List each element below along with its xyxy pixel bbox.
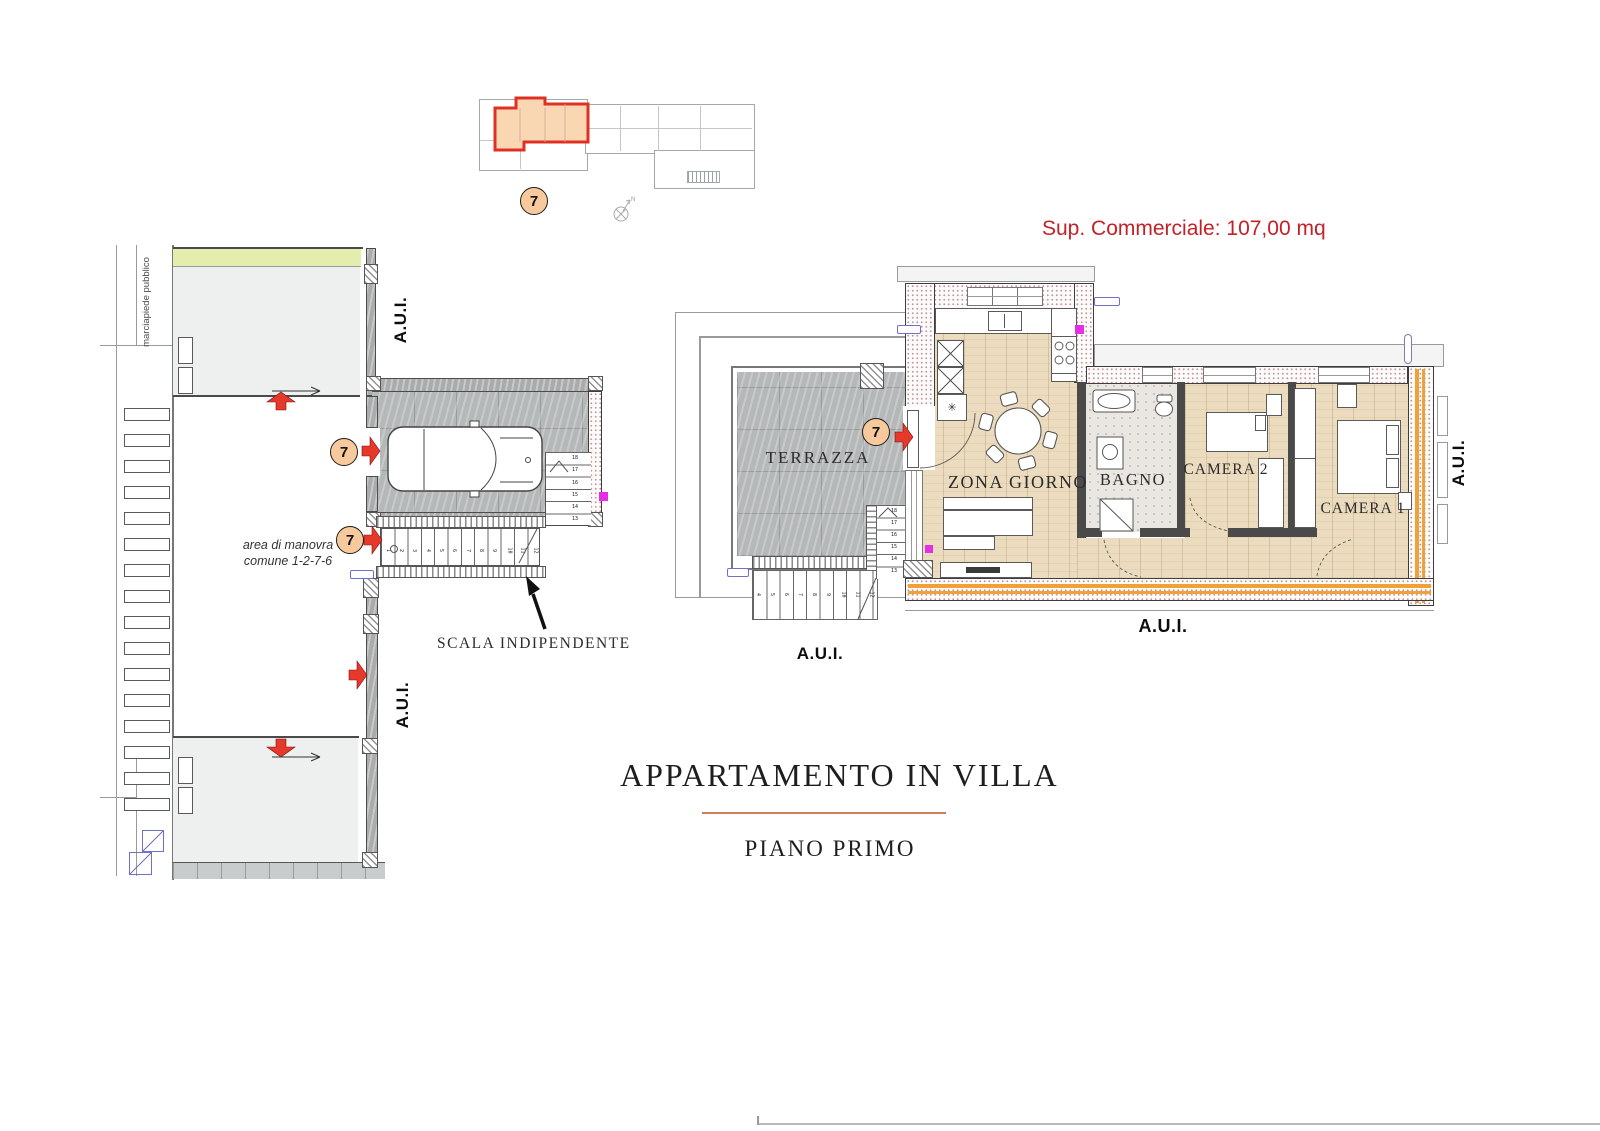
overview-main-block [585, 104, 755, 154]
page-title: APPARTAMENTO IN VILLA [620, 757, 1040, 794]
nightstand [1337, 384, 1357, 408]
pillow [1255, 415, 1266, 431]
compass-north-letter: N [631, 197, 635, 203]
plinth-line [905, 610, 1434, 611]
driveway-gate-line [173, 395, 360, 397]
lower-driveway [173, 738, 358, 862]
measure-mark [1094, 297, 1120, 306]
gate-post [178, 787, 193, 814]
sidewalk-paver [124, 694, 170, 707]
insulation-stripe [1415, 369, 1419, 603]
sidewalk-paver [124, 408, 170, 421]
bottom-wall [905, 578, 1434, 601]
garage-stair-landing [545, 452, 591, 525]
partition-wall [1177, 382, 1185, 530]
sidewalk-cross-line [100, 345, 172, 346]
survey-point [599, 492, 608, 501]
green-strip [173, 249, 361, 267]
window [1318, 367, 1370, 383]
insulation-stripe [1422, 369, 1426, 603]
sidewalk-paver [124, 434, 170, 447]
sidewalk-paver [124, 564, 170, 577]
stair-number: 4 [425, 549, 430, 552]
sidewalk-paver [124, 798, 170, 811]
stair-number: 14 [891, 557, 897, 562]
garage-left-wall [366, 396, 378, 428]
terrace-inner-line [699, 336, 701, 598]
pillow [1386, 425, 1399, 455]
stair-number: 6 [783, 593, 788, 596]
room-label-terrazza: TERRAZZA [752, 448, 884, 468]
stair-number: 5 [769, 593, 774, 596]
stair-parapet [376, 516, 546, 528]
wall-pier [364, 264, 378, 284]
kitchen-stove [1051, 336, 1077, 374]
arrow-gate [349, 661, 367, 689]
eaves-band [1094, 344, 1444, 367]
radiator [1437, 396, 1448, 436]
room-label-zona-giorno: ZONA GIORNO [948, 472, 1082, 493]
gate-post [178, 367, 193, 394]
corridor-floor [1077, 538, 1187, 578]
overview-inner-line [586, 128, 752, 129]
sidewalk-paver [124, 616, 170, 629]
sink-divider [1004, 314, 1005, 328]
stair-number: 13 [572, 517, 578, 522]
unit-marker-garage: 7 [330, 438, 358, 466]
kitchen-tall-unit [937, 340, 964, 367]
stair-number: 17 [572, 468, 578, 473]
sidewalk-edge-line [136, 245, 137, 346]
site-wall [366, 578, 378, 740]
window [1203, 367, 1256, 383]
floor-plan-page: Sup. Commerciale: 107,00 mq 7 marciapied… [0, 0, 1600, 1131]
garage-door-opening [364, 428, 380, 476]
wall-pier [362, 738, 378, 754]
drain-grate [129, 852, 152, 875]
sidewalk-paver [124, 720, 170, 733]
aui-label: A.U.I. [1132, 616, 1194, 634]
page-edge-line [757, 1123, 1600, 1125]
partition-wall [1228, 528, 1317, 537]
stair-number: 4 [755, 593, 760, 596]
commercial-area-label: Sup. Commerciale: 107,00 mq [1042, 217, 1372, 241]
stair-number: 5 [438, 549, 443, 552]
stair-number: 9 [491, 549, 496, 552]
fridge-symbol: ✳ [947, 401, 956, 414]
kitchen-tall-unit [937, 367, 964, 394]
pillow [1386, 458, 1399, 488]
stair-number: 15 [572, 493, 578, 498]
survey-point [925, 545, 933, 553]
downpipe [1404, 334, 1412, 364]
stair-number: 8 [478, 549, 483, 552]
wall-pier [363, 578, 379, 598]
partition-wall [1086, 528, 1102, 537]
fridge: ✳ [937, 394, 967, 421]
stair-number: 17 [891, 521, 897, 526]
kitchen-sink [988, 311, 1022, 331]
sidewalk-paver [124, 746, 170, 759]
survey-point [1075, 325, 1084, 334]
gate-post [178, 337, 193, 364]
page-subtitle: PIANO PRIMO [620, 836, 1040, 862]
stair-number: 10 [507, 547, 512, 553]
stair-parapet [376, 566, 546, 578]
stair-number: 11 [855, 591, 860, 597]
stair-number: 13 [891, 569, 897, 574]
drain-grate [142, 830, 164, 852]
stair-number: 3 [411, 549, 416, 552]
title-underline [702, 812, 946, 814]
window-glass-line [1143, 375, 1172, 376]
window [1142, 367, 1173, 383]
bathroom-floor [1086, 382, 1178, 532]
tv-screen [966, 567, 1000, 573]
compass-icon: N [614, 197, 635, 221]
partition-wall [1077, 382, 1086, 538]
sidewalk-paver [124, 460, 170, 473]
sofa-back [943, 497, 1033, 510]
wall-pier [366, 376, 381, 391]
partition-wall [1140, 528, 1190, 537]
stair-number: 9 [825, 593, 830, 596]
stair-number: 15 [891, 545, 897, 550]
unit-marker-entrance: 7 [862, 418, 890, 446]
terrace-inner-line [699, 336, 905, 338]
aui-label: A.U.I. [391, 294, 411, 346]
stair-number: 12 [533, 547, 538, 553]
sidewalk-paver [124, 642, 170, 655]
sidewalk-paver [124, 486, 170, 499]
wall-pier [362, 852, 378, 868]
stair-number: 8 [811, 593, 816, 596]
overview-lower-block [654, 150, 755, 189]
garage-label: BOX [403, 449, 467, 470]
sidewalk-paver [124, 512, 170, 525]
window-glass-line [1319, 375, 1369, 376]
sidewalk-edge-line [116, 245, 117, 876]
kitchen-left-wall [905, 283, 935, 412]
measure-mark [897, 325, 921, 334]
stair-number: 16 [572, 481, 578, 486]
stair-number: 11 [520, 547, 525, 553]
stair-number: 18 [572, 456, 578, 461]
stair-number: 6 [451, 549, 456, 552]
eaves-band [897, 266, 1095, 282]
stair-number: 10 [841, 591, 846, 597]
terrace-parapet-hatch [752, 556, 878, 569]
stairs-callout-arrow [526, 576, 545, 629]
stair-number: 2 [398, 549, 403, 552]
wall-pier [860, 363, 884, 389]
garage-left-wall [366, 476, 378, 512]
wall-pier [903, 560, 933, 578]
sidewalk-paver [124, 590, 170, 603]
overview-inner-line [520, 141, 521, 169]
wardrobe-divider [1294, 458, 1316, 459]
stair-number: 12 [869, 591, 874, 597]
sidewalk-paver [124, 538, 170, 551]
radiator [1437, 504, 1448, 544]
overview-unit-marker: 7 [520, 187, 548, 215]
stair-number: 16 [891, 533, 897, 538]
kitchen-window [967, 287, 1043, 306]
overview-left-block [479, 99, 588, 171]
independent-stairs-label: SCALA INDIPENDENTE [437, 635, 627, 653]
wall-pier [363, 614, 379, 634]
measure-mark [350, 570, 374, 579]
aui-label: A.U.I. [393, 679, 413, 731]
sidewalk-paver [124, 668, 170, 681]
maneuver-line2: comune 1-2-7-6 [213, 554, 363, 570]
measure-mark [727, 568, 749, 577]
stair-number: 7 [797, 593, 802, 596]
gate-post [178, 757, 193, 784]
sidewalk-paver [124, 772, 170, 785]
bedside-cabinet [1266, 394, 1282, 416]
insulation-stripe [908, 584, 1431, 588]
page-edge-tick [757, 1116, 759, 1125]
aui-label: A.U.I. [789, 644, 851, 662]
sofa-chaise [943, 536, 995, 550]
site-wall [366, 740, 378, 868]
room-label-camera1: CAMERA 1 [1318, 500, 1408, 518]
unit-marker-stairs: 7 [336, 526, 364, 554]
overview-stair-hatch [687, 171, 720, 183]
upper-driveway [173, 267, 360, 396]
stair-number: 7 [465, 549, 470, 552]
stair-flight [380, 528, 540, 566]
stair-number: 18 [891, 509, 897, 514]
stair-number: 1 [385, 549, 390, 552]
garage-top-wall [372, 378, 596, 392]
room-label-bagno: BAGNO [1098, 470, 1168, 490]
room-label-camera2: CAMERA 2 [1178, 461, 1274, 479]
sidewalk-label: marciapiede pubblico [141, 251, 157, 353]
window-glass-line [1204, 375, 1255, 376]
stair-number: 14 [572, 505, 578, 510]
sofa-seat [943, 510, 1033, 536]
wall-pier [588, 376, 603, 391]
overview-inner-line [480, 140, 586, 141]
window-glass-line [968, 296, 1042, 297]
insulation-stripe [908, 591, 1431, 595]
direction-arrows [272, 387, 320, 761]
radiator [1437, 442, 1448, 498]
paving-strip [173, 862, 385, 879]
aui-label: A.U.I. [1449, 437, 1469, 489]
entrance-door-leaf [907, 410, 919, 468]
